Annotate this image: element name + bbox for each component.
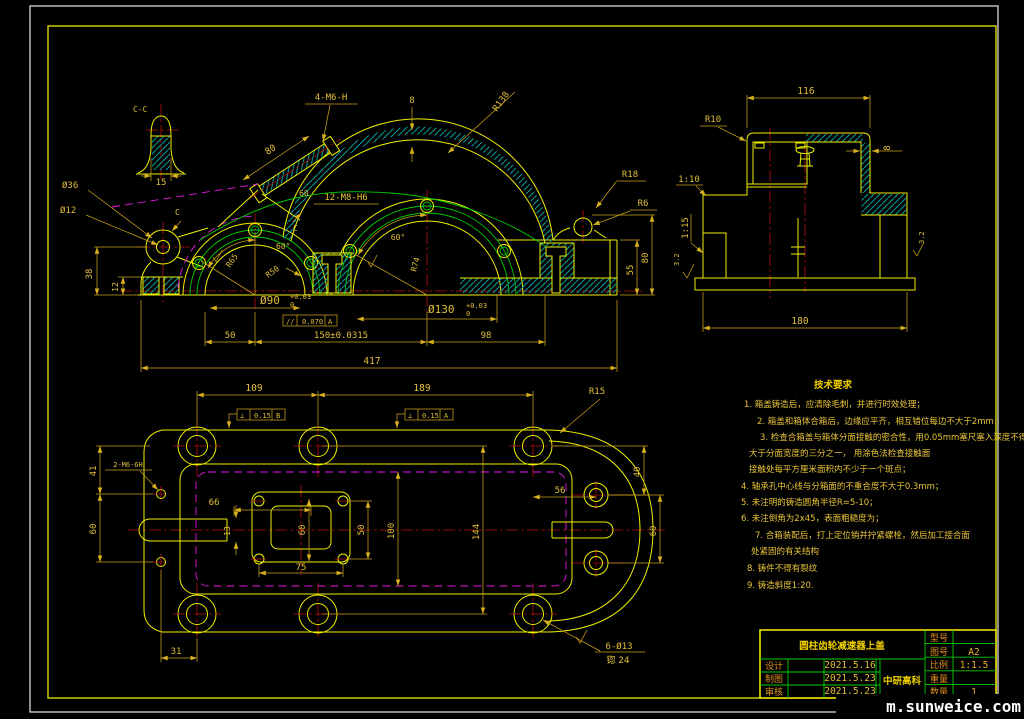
dim-60-right: 60 <box>649 526 659 537</box>
tech-line: 6. 未注倒角为2x45，表面粗糙度为； <box>741 513 884 524</box>
tech-line: 7. 合箱装配后，打上定位销并拧紧螺栓，然后加工接合面 <box>755 530 970 541</box>
dim-80-right: 80 <box>641 253 651 264</box>
perpendicularity-frame-b: ⊥ 0.15 B <box>229 409 285 428</box>
dim-109: 109 <box>245 383 262 394</box>
dim-8-side: 8 <box>883 145 893 150</box>
tech-title: 技术要求 <box>814 379 853 391</box>
tech-requirements: 技术要求 1. 箱盖铸造后，应清除毛刺，并进行时效处理； 2. 箱盖和箱体合箱后… <box>741 379 1024 591</box>
label-2-m6-6h: 2-M6-6H <box>113 461 143 469</box>
plan-view: 109 189 ⊥ 0.15 B ⊥ 0.15 A R15 40 56 60 <box>89 383 668 666</box>
dim-417: 417 <box>363 356 380 367</box>
dim-dia12: Ø12 <box>60 205 76 216</box>
dim-98: 98 <box>481 331 492 341</box>
dim-8-wall: 8 <box>409 96 414 106</box>
field-label-drawing: 图号 <box>930 647 948 658</box>
perp-symbol-b: ⊥ <box>240 412 244 420</box>
perp-datum-b: B <box>276 412 280 420</box>
dim-dia130: Ø130 <box>428 303 455 316</box>
dim-100: 100 <box>387 523 397 539</box>
part-name: 圆柱齿轮减速器上盖 <box>799 640 885 652</box>
dim-40: 40 <box>633 467 643 478</box>
tech-line: 1. 箱盖铸造后，应清除毛刺，并进行时效处理； <box>744 399 925 410</box>
label-6-dia13: 6-Ø13 <box>605 641 632 652</box>
label-r74: R74 <box>409 256 421 272</box>
field-label-model: 型号 <box>930 633 948 644</box>
dim-75: 75 <box>296 563 307 573</box>
tech-line: 8. 铸件不得有裂纹 <box>747 563 818 574</box>
cad-drawing-screenshot: C-C 15 <box>0 0 1024 719</box>
sheet-frame <box>30 6 998 712</box>
label-r18: R18 <box>622 170 638 180</box>
dim-dia130-tol-bot: 0 <box>466 310 470 318</box>
dim-dia90-tol-top: +0.03 <box>290 293 311 301</box>
tech-line: 大于分面宽度的三分之一， 用涂色法检查接触面 <box>749 448 931 459</box>
watermark: m.sunweice.com <box>836 694 1024 718</box>
label-4-m6-h: 4-M6-H <box>315 93 348 103</box>
dim-55: 55 <box>626 265 636 276</box>
dim-189: 189 <box>413 383 430 394</box>
watermark-text: m.sunweice.com <box>886 697 1021 716</box>
roughness-right: 3.2 <box>918 231 926 244</box>
tech-line: 3. 检查合箱盖与箱体分面接触的密合性，用0.05mm塞尺塞入深度不得 <box>760 432 1024 443</box>
dim-41: 41 <box>89 466 99 477</box>
row-date-draft: 2021.5.23 <box>824 673 875 684</box>
parallel-symbol: // <box>286 318 294 326</box>
tech-line: 2. 箱盖和箱体合箱后，边缘应平齐，相互错位每边不大于2mm； <box>757 416 1002 427</box>
label-r50: R50 <box>264 264 281 280</box>
dim-50-hole: 50 <box>357 525 367 536</box>
label-r65: R65 <box>224 252 240 269</box>
tech-line: 4. 轴承孔中心线与分箱面的不重合度不大于0.3mm； <box>741 481 943 492</box>
dim-144: 144 <box>472 524 482 540</box>
section-arrow-c1: C <box>175 208 180 217</box>
field-label-weight: 重量 <box>930 673 948 685</box>
dim-66: 66 <box>209 498 220 508</box>
parallelism-frame: // 0.070 A <box>283 315 337 326</box>
row-label-draft: 制图 <box>765 673 783 685</box>
front-view: 4-M6-H 80 60 12-M8-H6 8 R138 R18 R6 80 5… <box>60 90 657 372</box>
row-label-check: 审核 <box>765 686 783 698</box>
dim-50: 50 <box>225 331 236 341</box>
perp-tol-b: 0.15 <box>254 412 271 420</box>
label-12-m8-h6: 12-M8-H6 <box>324 193 367 203</box>
tech-line: 处紧固的有关结构 <box>751 546 819 557</box>
slope-1-10: 1:10 <box>678 175 700 185</box>
dim-150: 150±0.0315 <box>314 331 368 341</box>
tech-line: 接触处每平方厘米面积内不少于一个斑点； <box>749 464 911 475</box>
m6-holes <box>153 486 169 570</box>
tech-line: 9. 铸造斜度1:20. <box>747 580 814 591</box>
section-label-cc: C-C <box>133 105 148 114</box>
roughness-left: 3.2 <box>673 253 681 266</box>
label-counterbore: 锪 24 <box>606 654 630 666</box>
dim-60-cover: 60 <box>299 189 309 198</box>
parallel-datum: A <box>328 318 333 326</box>
perp-datum-a: A <box>444 412 449 420</box>
dim-116: 116 <box>797 86 814 97</box>
dim-12: 12 <box>111 282 120 292</box>
dim-dia130-tol-top: +0.03 <box>466 302 487 310</box>
field-value-scale: 1:1.5 <box>960 660 989 671</box>
section-arrow-c2: C <box>293 224 298 233</box>
perp-symbol-a: ⊥ <box>408 412 412 420</box>
title-block: 圆柱齿轮减速器上盖 型号 图号 比例 重量 数量 A2 1:1.5 1 设计 制… <box>760 630 996 698</box>
perp-tol-a: 0.15 <box>422 412 439 420</box>
plan-dimensions: 109 189 ⊥ 0.15 B ⊥ 0.15 A R15 40 56 60 <box>89 383 664 666</box>
dim-180: 180 <box>791 316 808 327</box>
dim-60-left: 60 <box>89 524 99 535</box>
detail-view-cc: C-C 15 <box>133 104 186 188</box>
row-date-design: 2021.5.16 <box>824 660 876 671</box>
dim-38: 38 <box>85 269 95 280</box>
label-r6: R6 <box>638 199 649 209</box>
perpendicularity-frame-a: ⊥ 0.15 A <box>397 409 453 428</box>
dim-60deg-left: 60° <box>276 242 290 251</box>
dim-dia36: Ø36 <box>62 180 78 191</box>
dim-15: 15 <box>156 178 167 188</box>
field-value-drawing: A2 <box>968 647 979 658</box>
dim-31: 31 <box>171 647 182 657</box>
dim-dia90: Ø90 <box>260 294 280 307</box>
parallel-tol: 0.070 <box>302 318 323 326</box>
dim-60-hole: 60 <box>298 525 308 536</box>
company-name: 中研高科 <box>883 675 922 687</box>
label-r15: R15 <box>589 387 605 397</box>
slope-1-15: 1:15 <box>681 217 691 239</box>
drawing-canvas: C-C 15 <box>0 0 1024 719</box>
dim-60deg-right: 60° <box>391 233 405 242</box>
side-view: 116 R10 8 1:10 1:15 180 3.2 3.2 <box>673 86 926 332</box>
dim-80-cover: 80 <box>264 143 279 157</box>
label-r138: R138 <box>491 90 512 114</box>
tech-line: 5. 未注明的铸造圆角半径R=5-10； <box>741 497 878 508</box>
dim-13: 13 <box>223 526 232 536</box>
row-label-design: 设计 <box>765 660 783 672</box>
label-r10: R10 <box>705 115 721 125</box>
field-label-scale: 比例 <box>930 659 948 671</box>
dim-56: 56 <box>555 486 566 496</box>
